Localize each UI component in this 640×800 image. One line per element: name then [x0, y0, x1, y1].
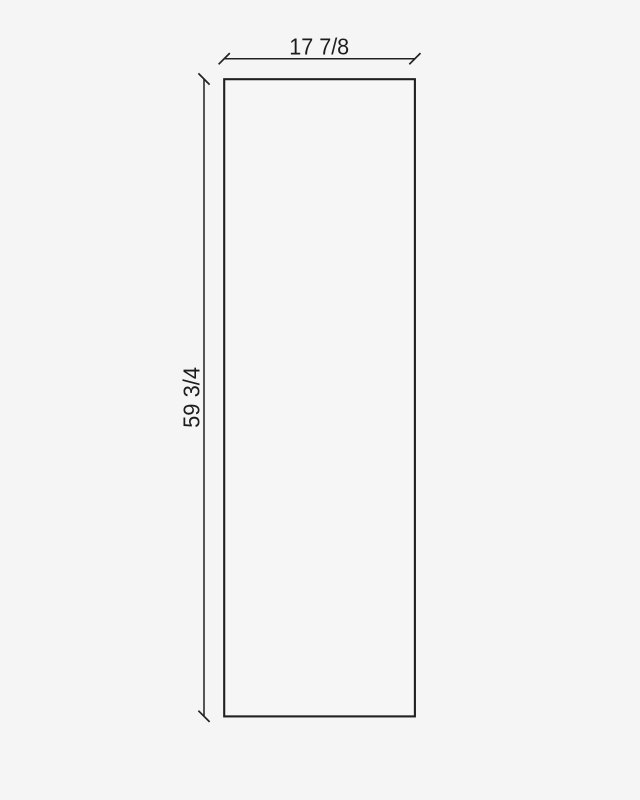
- svg-text:59 3/4: 59 3/4: [179, 367, 205, 428]
- svg-text:17 7/8: 17 7/8: [289, 34, 349, 60]
